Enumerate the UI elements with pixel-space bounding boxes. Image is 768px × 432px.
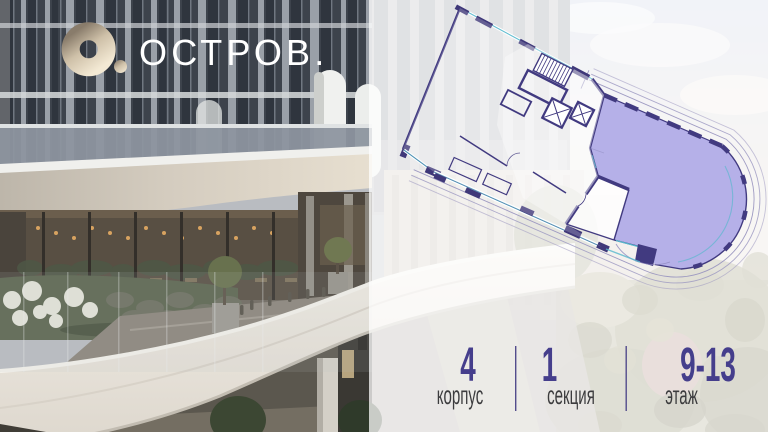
svg-text:секция: секция (547, 381, 595, 410)
svg-text:ОСТРОВ.: ОСТРОВ. (139, 32, 328, 73)
svg-text:корпус: корпус (437, 381, 484, 410)
svg-text:этаж: этаж (665, 381, 698, 410)
